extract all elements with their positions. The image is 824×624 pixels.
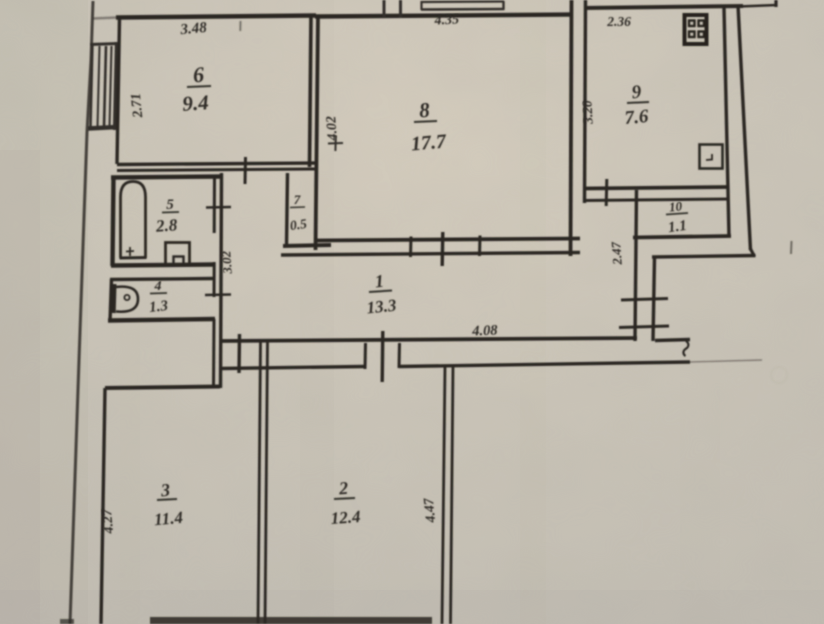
svg-text:9.4: 9.4 (182, 90, 210, 116)
svg-text:4.47: 4.47 (422, 496, 440, 524)
svg-text:1.1: 1.1 (667, 218, 688, 236)
svg-text:11.4: 11.4 (153, 508, 183, 529)
svg-text:4.35: 4.35 (433, 12, 459, 28)
svg-text:3.02: 3.02 (218, 250, 235, 275)
svg-text:12.4: 12.4 (330, 507, 361, 528)
svg-text:7.6: 7.6 (624, 106, 650, 129)
svg-text:3.20: 3.20 (579, 100, 595, 126)
svg-text:2: 2 (337, 478, 348, 499)
svg-text:7: 7 (294, 192, 301, 207)
svg-text:3: 3 (159, 480, 171, 501)
svg-text:17.7: 17.7 (410, 130, 448, 155)
svg-text:2.47: 2.47 (608, 241, 625, 266)
svg-text:4.02: 4.02 (324, 116, 341, 142)
svg-text:10: 10 (668, 198, 683, 214)
svg-text:6: 6 (192, 62, 205, 88)
svg-text:5: 5 (166, 197, 174, 213)
svg-text:3.48: 3.48 (179, 20, 208, 38)
svg-text:4.08: 4.08 (471, 323, 499, 340)
svg-text:0.5: 0.5 (289, 216, 308, 233)
svg-text:13.3: 13.3 (366, 295, 398, 317)
svg-text:4.27: 4.27 (100, 507, 117, 535)
svg-text:2.71: 2.71 (129, 92, 147, 119)
svg-text:1.3: 1.3 (148, 298, 169, 316)
svg-text:2.36: 2.36 (606, 14, 631, 29)
svg-text:2.8: 2.8 (154, 215, 178, 236)
svg-text:4: 4 (154, 279, 162, 294)
